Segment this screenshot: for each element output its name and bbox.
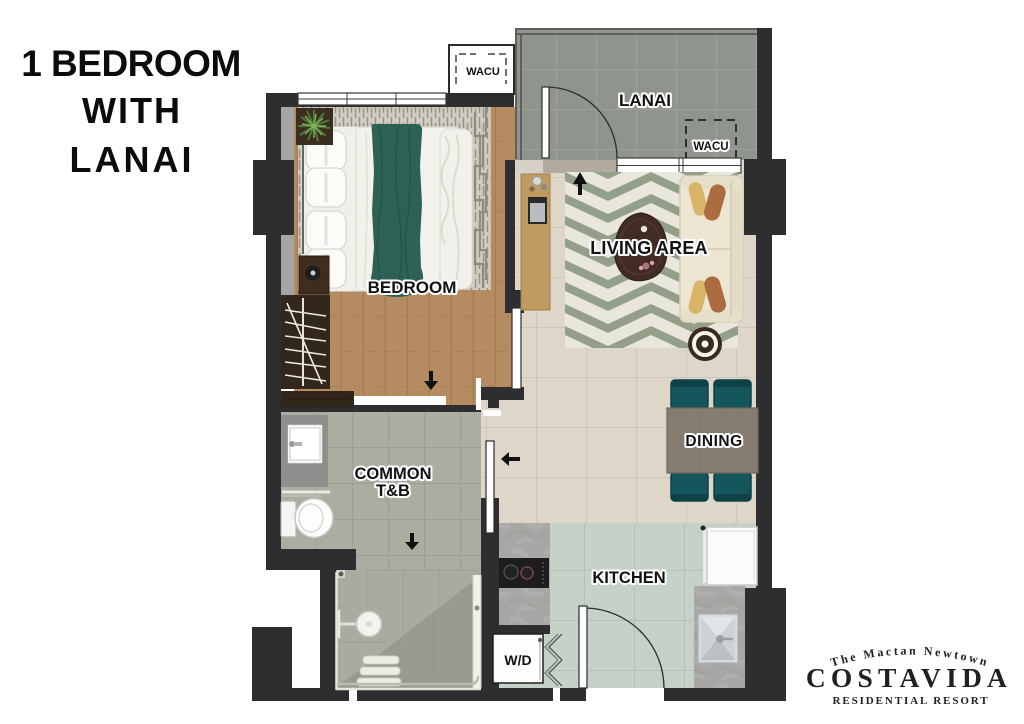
svg-text:LANAI: LANAI bbox=[619, 91, 671, 110]
svg-text:DINING: DINING bbox=[685, 433, 742, 450]
svg-text:COMMON: COMMON bbox=[355, 465, 432, 483]
svg-text:W/D: W/D bbox=[504, 652, 531, 668]
svg-text:WITH: WITH bbox=[82, 90, 182, 131]
svg-text:LIVING AREA: LIVING AREA bbox=[590, 238, 708, 258]
svg-text:KITCHEN: KITCHEN bbox=[592, 569, 665, 587]
svg-text:LANAI: LANAI bbox=[70, 139, 195, 180]
svg-text:WACU: WACU bbox=[693, 141, 728, 153]
svg-text:WACU: WACU bbox=[466, 66, 500, 78]
svg-text:COSTAVIDA: COSTAVIDA bbox=[806, 662, 1012, 693]
svg-text:RESIDENTIAL RESORT: RESIDENTIAL RESORT bbox=[833, 695, 990, 707]
svg-text:1 BEDROOM: 1 BEDROOM bbox=[21, 43, 241, 84]
svg-text:BEDROOM: BEDROOM bbox=[368, 278, 457, 297]
svg-text:T&B: T&B bbox=[376, 482, 410, 500]
